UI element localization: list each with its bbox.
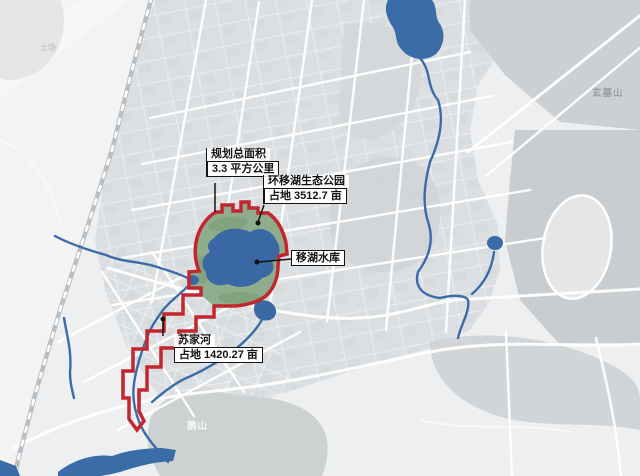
place-label-tuchang: 土场 xyxy=(40,42,56,53)
sujia-river-title: 苏家河 xyxy=(174,334,215,347)
planning-map: 玄墓山 鹅山 土场 规划总面积 3.3 平方公里 环移湖生态公园 占地 3512… xyxy=(0,0,640,476)
callout-eco-park: 环移湖生态公园 占地 3512.7 亩 xyxy=(263,175,349,204)
eco-park-title: 环移湖生态公园 xyxy=(264,175,349,188)
marker-eco-park xyxy=(256,221,261,226)
map-canvas xyxy=(0,0,640,476)
callout-planning-area: 规划总面积 3.3 平方公里 xyxy=(206,148,279,177)
place-label-xuanmu-mountain: 玄墓山 xyxy=(592,85,624,99)
marker-sujia-river xyxy=(161,317,166,322)
sujia-river-value: 占地 1420.27 亩 xyxy=(174,347,263,363)
eco-park-value: 占地 3512.7 亩 xyxy=(264,188,347,204)
planning-area-title: 规划总面积 xyxy=(207,148,270,161)
callout-sujia-river: 苏家河 占地 1420.27 亩 xyxy=(174,334,263,363)
marker-reservoir xyxy=(255,260,260,265)
place-label-e-mountain: 鹅山 xyxy=(187,418,208,432)
pond-east xyxy=(487,236,503,250)
callout-reservoir: 移湖水库 xyxy=(291,248,345,266)
reservoir-label: 移湖水库 xyxy=(291,250,345,266)
